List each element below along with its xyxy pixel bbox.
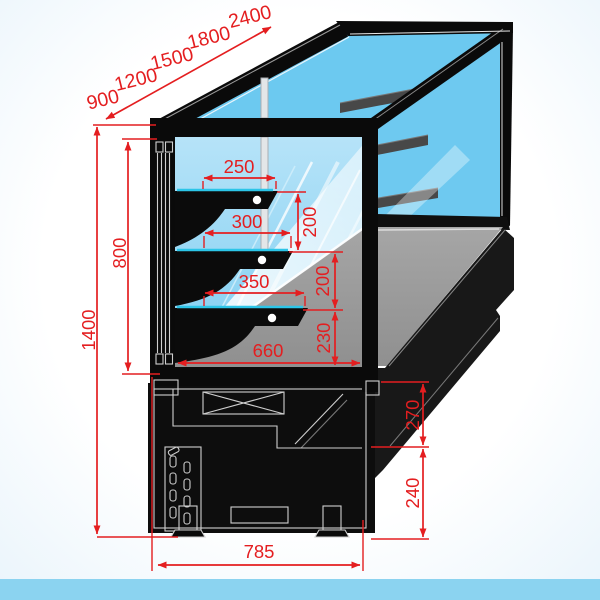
- frame-bottom-band: [152, 367, 378, 386]
- dim-label-270: 270: [402, 400, 423, 431]
- dim-label-200-upper: 200: [299, 207, 320, 238]
- frame-right-post: [362, 118, 378, 392]
- shelf-led-dot: [258, 256, 266, 264]
- dim-label-200-lower: 200: [312, 266, 333, 297]
- frame-top-bar: [150, 118, 378, 137]
- dim-label-660: 660: [253, 340, 284, 361]
- dim-label-300: 300: [232, 211, 263, 232]
- dim-label-250: 250: [224, 156, 255, 177]
- dim-label-240: 240: [402, 478, 423, 509]
- shelf-led-dot: [253, 196, 261, 204]
- display-case-dimension-diagram: 900 1200 1500 1800 2400 1400 800 250 300…: [0, 0, 600, 600]
- dim-label-350: 350: [239, 271, 270, 292]
- frame-left-post: [150, 122, 175, 385]
- dim-label-800: 800: [109, 238, 130, 269]
- led-pole: [261, 78, 268, 265]
- diagram-canvas: 900 1200 1500 1800 2400 1400 800 250 300…: [0, 0, 600, 600]
- dim-label-785: 785: [244, 541, 275, 562]
- dim-label-230: 230: [313, 323, 334, 354]
- footer-accent-bar: [0, 579, 600, 600]
- shelf-led-dot: [268, 314, 276, 322]
- dim-label-1400: 1400: [78, 309, 99, 350]
